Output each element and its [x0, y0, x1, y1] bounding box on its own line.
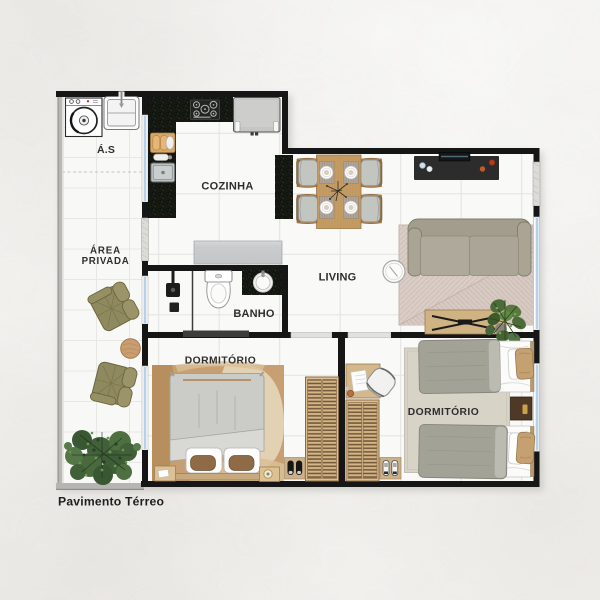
svg-text:COZINHA: COZINHA	[201, 181, 253, 193]
svg-text:PRIVADA: PRIVADA	[82, 256, 130, 267]
svg-text:BANHO: BANHO	[233, 308, 275, 320]
svg-text:DORMITÓRIO: DORMITÓRIO	[408, 405, 479, 418]
svg-text:DORMITÓRIO: DORMITÓRIO	[185, 354, 256, 367]
svg-text:Á.S: Á.S	[97, 143, 115, 156]
svg-text:Pavimento Térreo: Pavimento Térreo	[58, 495, 164, 509]
svg-text:LIVING: LIVING	[319, 272, 357, 284]
